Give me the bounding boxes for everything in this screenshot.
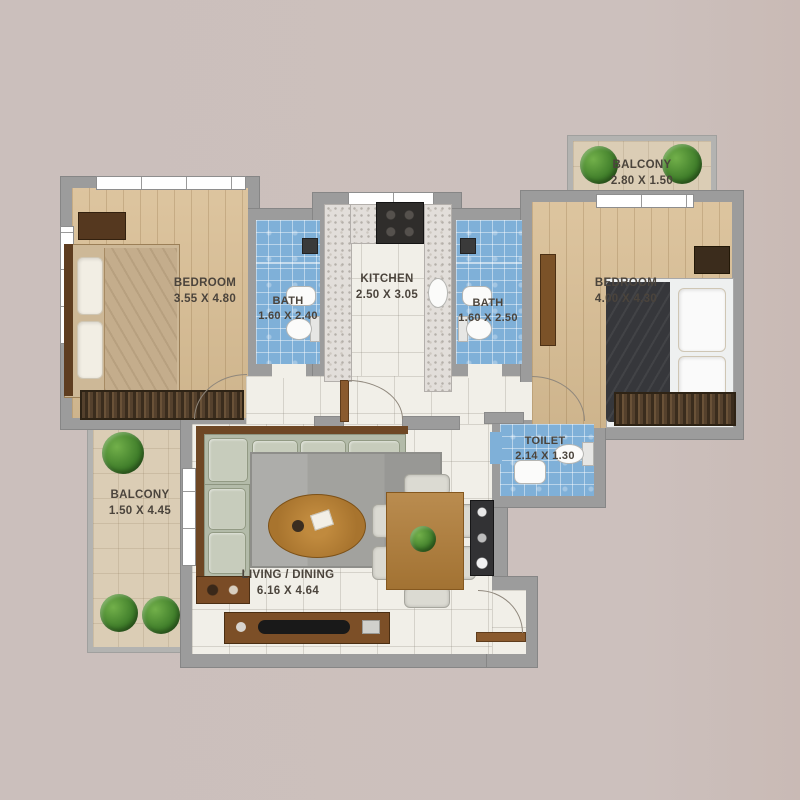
pillow <box>77 321 103 379</box>
room-name: BEDROOM <box>566 276 686 292</box>
shower-divider <box>256 262 320 264</box>
shower-divider <box>456 262 522 264</box>
bath-left-door-gap <box>272 364 306 378</box>
sideboard <box>470 500 494 576</box>
room-label-bath-right: BATH 1.60 X 2.50 <box>428 296 548 326</box>
nightstand <box>78 212 126 240</box>
room-dims: 4.00 X 4.30 <box>566 292 686 308</box>
room-name: BALCONY <box>80 488 200 504</box>
nightstand <box>694 246 730 274</box>
room-name: BEDROOM <box>145 276 265 292</box>
plant <box>102 432 144 474</box>
room-dims: 2.80 X 1.50 <box>582 174 702 190</box>
tv <box>258 620 350 634</box>
room-label-balcony-left: BALCONY 1.50 X 4.45 <box>80 488 200 519</box>
room-name: KITCHEN <box>327 272 447 288</box>
wall <box>402 416 460 430</box>
room-dims: 1.60 X 2.50 <box>428 311 548 326</box>
pillow <box>77 257 103 315</box>
room-name: BALCONY <box>582 158 702 174</box>
plant <box>100 594 138 632</box>
sofa-cushion <box>208 438 248 482</box>
room-name: TOILET <box>485 434 605 449</box>
bath-right-door-gap <box>468 364 502 378</box>
bedroom-rug <box>614 392 736 426</box>
room-dims: 1.60 X 2.40 <box>228 309 348 324</box>
room-label-living-dining: LIVING / DINING 6.16 X 4.64 <box>218 568 358 599</box>
room-dims: 2.14 X 1.30 <box>485 449 605 464</box>
shower-fixture <box>302 238 318 254</box>
window <box>96 176 246 190</box>
sofa-cushion <box>208 488 246 530</box>
balcony-slider-door <box>596 194 694 208</box>
room-dims: 6.16 X 4.64 <box>218 584 358 600</box>
room-label-balcony-top: BALCONY 2.80 X 1.50 <box>582 158 702 189</box>
centerpiece-plant <box>410 526 436 552</box>
room-name: BATH <box>428 296 548 311</box>
bed-headboard <box>64 244 73 396</box>
floor-plan: BALCONY 2.80 X 1.50 BEDROOM 3.55 X 4.80 … <box>0 0 800 800</box>
room-label-bedroom-right: BEDROOM 4.00 X 4.30 <box>566 276 686 307</box>
coffee-table-bowl <box>292 520 304 532</box>
bed-blanket <box>104 248 177 392</box>
console-decor <box>362 620 380 634</box>
wall <box>484 412 524 424</box>
stove <box>376 202 424 244</box>
entry-door-leaf <box>476 632 526 642</box>
console-decor <box>236 622 246 632</box>
shower-fixture <box>460 238 476 254</box>
room-dims: 1.50 X 4.45 <box>80 504 200 520</box>
room-name: LIVING / DINING <box>218 568 358 584</box>
room-label-toilet: TOILET 2.14 X 1.30 <box>485 434 605 464</box>
sofa-frame <box>196 426 408 434</box>
plant <box>142 596 180 634</box>
